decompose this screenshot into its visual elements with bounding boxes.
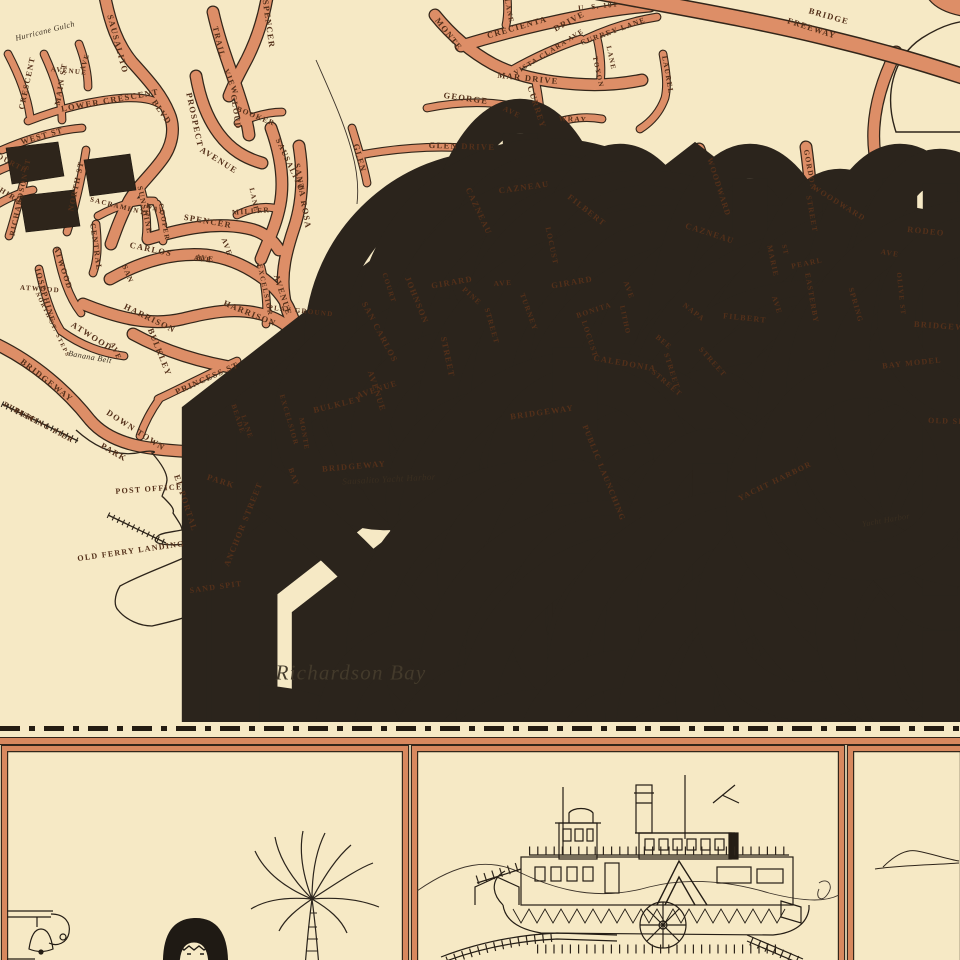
map-label: BRIDGEWAY bbox=[322, 458, 387, 474]
trestle-walkway-icon bbox=[441, 933, 803, 960]
map-label: FILBERT bbox=[723, 311, 768, 325]
map-label: NORTH ST. STEPS bbox=[34, 292, 71, 358]
map-label: AVE bbox=[220, 237, 235, 258]
map-label: CALEDONIA bbox=[593, 353, 657, 374]
map-label: PUBLIC LAUNCHING bbox=[581, 424, 628, 523]
panel-left-vignette bbox=[2, 746, 408, 960]
map-label: U. S. 101 bbox=[578, 0, 619, 13]
map-label: POST OFFICE bbox=[115, 482, 183, 496]
map-label: PLAY GROUND bbox=[268, 304, 334, 319]
map-label: Richardson Bay bbox=[276, 661, 427, 686]
map-label: OLD SH bbox=[928, 416, 960, 426]
map-label: CURREY LANE bbox=[579, 15, 647, 47]
map-label: GLEN DRIVE bbox=[429, 140, 496, 152]
map-label: PINE bbox=[460, 285, 483, 307]
map-label: MONTE bbox=[433, 16, 465, 53]
map-label: LOWER CRESCENT bbox=[60, 86, 159, 113]
map-label: MONTE bbox=[297, 417, 311, 451]
map-label: NAPA bbox=[681, 301, 707, 324]
map-label: SAND SPIT bbox=[189, 579, 243, 595]
map-labels: Hurricane GulchSAUSALITOBLVDCRESCENTMAIN… bbox=[0, 0, 960, 720]
map-label: BLVD bbox=[150, 98, 174, 127]
map-label: GIRARD bbox=[550, 273, 593, 290]
map-label: LANE bbox=[605, 45, 618, 71]
bell-bracket-icon bbox=[7, 911, 69, 959]
map-label: CAZNEAU bbox=[684, 220, 736, 245]
map-label: AVE bbox=[880, 247, 900, 259]
map-label: EASTERBY bbox=[803, 272, 821, 324]
map-label: SAN bbox=[120, 264, 135, 285]
map-label: AVENUE bbox=[198, 144, 239, 175]
map-label: SAUSALITO bbox=[105, 13, 130, 74]
map-label: ATWOOD bbox=[69, 319, 114, 352]
map-label: COURT bbox=[380, 272, 397, 304]
map-label: Banana Belt bbox=[67, 349, 112, 366]
map-label: MAR DRIVE bbox=[497, 70, 559, 86]
hill-outline-icon bbox=[875, 851, 959, 869]
map-label: YACHT HARBOR bbox=[737, 459, 814, 502]
map-label: CAZNEAU bbox=[498, 178, 550, 195]
map-label: GLEN bbox=[351, 143, 368, 174]
map-label: BRIDGEWAY bbox=[19, 356, 76, 403]
map-border-dashed bbox=[0, 726, 960, 731]
panel-right-vignette bbox=[848, 746, 960, 960]
map-label: RODEO bbox=[907, 224, 946, 238]
pictorial-map-sausalito: Hurricane GulchSAUSALITOBLVDCRESCENTMAIN… bbox=[0, 0, 960, 960]
map-label: VIEW bbox=[222, 68, 241, 97]
map-label: PARK bbox=[206, 472, 236, 490]
map-label: SAN CARLOS bbox=[360, 300, 401, 364]
map-label: SPRING bbox=[847, 286, 866, 323]
map-label: TURNEY bbox=[518, 292, 540, 332]
map-label: AVE bbox=[502, 104, 523, 120]
map-label: WOODWARD bbox=[705, 157, 732, 218]
map-label: OLIVE ST bbox=[895, 272, 907, 316]
map-label: Hurricane Gulch bbox=[14, 19, 75, 42]
map-label: OLD FERRY LANDING bbox=[77, 539, 185, 563]
map-label: LITHO bbox=[618, 305, 632, 335]
map-label: CENTRAL bbox=[88, 222, 104, 271]
map-label: FISHING PIER bbox=[12, 405, 75, 444]
map-label: SPENCER bbox=[261, 0, 278, 49]
map-label: SPENCER bbox=[183, 212, 233, 230]
map-label: PROSPECT bbox=[184, 92, 205, 149]
map-label: AVE bbox=[193, 253, 213, 265]
map-label: BONITA bbox=[575, 300, 613, 320]
panel-middle-vignette bbox=[412, 746, 844, 960]
map-label: Yacht Harbor bbox=[861, 511, 910, 528]
map-label: VISTA CLARA AVE bbox=[512, 27, 585, 77]
map-label: BULKLEY bbox=[146, 327, 174, 378]
map-label: TOYON bbox=[591, 55, 605, 88]
map-label: CARLOS bbox=[129, 240, 173, 259]
map-label: Sausalito Yacht Harbor bbox=[342, 472, 436, 487]
map-label: STREET bbox=[804, 195, 819, 233]
map-label: CRESCENT bbox=[17, 56, 37, 111]
map-label: PARK bbox=[99, 441, 129, 464]
map-label: WEST ST bbox=[20, 126, 65, 147]
map-label: ATWOOD bbox=[52, 245, 74, 290]
map-label: GEORGE bbox=[443, 90, 489, 106]
map-label: CRECIENTA bbox=[486, 14, 548, 41]
map-label: BAY bbox=[287, 467, 302, 488]
map-label: LOCUST bbox=[580, 319, 601, 359]
map-label: AVE bbox=[770, 295, 784, 316]
map-label: NORTH ST bbox=[66, 160, 85, 212]
map-label: LOCUST bbox=[544, 226, 561, 266]
map-label: JOHNSON bbox=[403, 275, 431, 325]
map-label: CURREY bbox=[525, 84, 548, 129]
map-label: CAZNEAU bbox=[464, 186, 495, 237]
map-label: BAY MODEL bbox=[882, 355, 942, 370]
shore-squiggle bbox=[818, 881, 831, 899]
map-label: TRAIL bbox=[211, 25, 227, 58]
map-label: BEE bbox=[654, 332, 674, 351]
ferryboat-icon bbox=[475, 775, 809, 948]
palm-tree-icon bbox=[251, 831, 379, 960]
girl-portrait-icon bbox=[163, 918, 228, 960]
map-label: GORDON bbox=[802, 149, 818, 191]
map-label: BRIDGEWAY bbox=[914, 319, 960, 333]
map-label: LANE bbox=[503, 0, 516, 24]
map-label: ANCHOR STREET bbox=[221, 480, 264, 568]
map-label: ST bbox=[780, 244, 790, 257]
map-label: BRIDGEWAY bbox=[509, 403, 574, 422]
map-label: COOPER bbox=[157, 203, 171, 242]
map-label: FILBERT bbox=[566, 192, 609, 228]
map-border-rule bbox=[0, 737, 960, 745]
map-label: WRAY bbox=[559, 114, 588, 124]
map-label: MARIE bbox=[765, 244, 781, 278]
map-label: WOODWARD bbox=[811, 183, 868, 223]
map-label: AVE bbox=[493, 278, 512, 288]
map-label: PRINCESS ST bbox=[174, 359, 241, 396]
map-label: LAUREL bbox=[660, 55, 676, 95]
map-label: STREET bbox=[697, 345, 729, 379]
map-label: STREET bbox=[483, 307, 502, 345]
map-label: AVE bbox=[622, 280, 637, 301]
map-label: STREET bbox=[439, 336, 457, 379]
map-label: PEARL bbox=[790, 255, 823, 270]
